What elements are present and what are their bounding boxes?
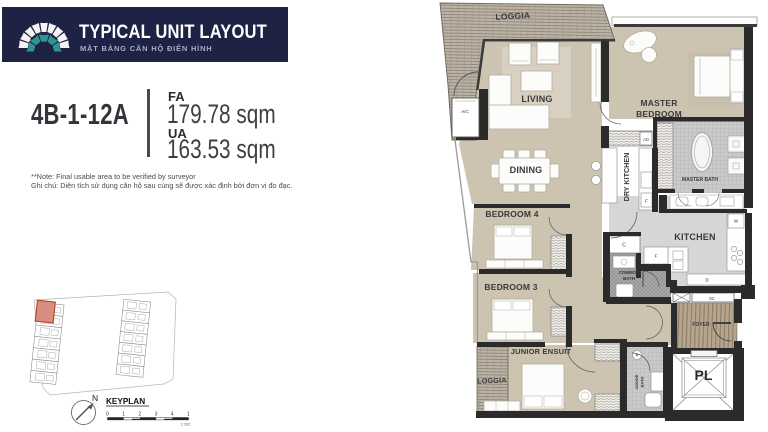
svg-text:BATH: BATH bbox=[640, 376, 645, 387]
svg-text:BEDROOM 4: BEDROOM 4 bbox=[485, 209, 538, 219]
svg-text:BEDROOM 3: BEDROOM 3 bbox=[484, 282, 537, 292]
svg-text:DRY KITCHEN: DRY KITCHEN bbox=[622, 153, 631, 202]
svg-text:0: 0 bbox=[106, 412, 109, 418]
svg-text:1: 1 bbox=[187, 412, 190, 418]
svg-text:N: N bbox=[92, 393, 98, 403]
svg-text:PL: PL bbox=[695, 367, 713, 383]
svg-text:4: 4 bbox=[171, 412, 174, 418]
svg-text:SC: SC bbox=[709, 296, 715, 301]
svg-text:COMMON: COMMON bbox=[619, 270, 640, 275]
svg-text:1: 1 bbox=[122, 412, 125, 418]
svg-text:BATH: BATH bbox=[623, 276, 635, 281]
svg-text:JUNIOR: JUNIOR bbox=[634, 374, 639, 389]
svg-text:JUNIOR ENSUIT: JUNIOR ENSUIT bbox=[511, 347, 572, 356]
svg-text:1:102: 1:102 bbox=[181, 422, 192, 427]
svg-text:KITCHEN: KITCHEN bbox=[674, 232, 715, 242]
svg-text:3: 3 bbox=[155, 412, 158, 418]
svg-text:F: F bbox=[655, 254, 658, 259]
svg-text:LIVING: LIVING bbox=[521, 94, 552, 104]
svg-text:DINING: DINING bbox=[510, 165, 543, 175]
svg-text:A/C: A/C bbox=[461, 109, 469, 114]
svg-text:FOYER: FOYER bbox=[692, 322, 710, 328]
svg-text:2: 2 bbox=[138, 412, 141, 418]
svg-text:KEYPLAN: KEYPLAN bbox=[106, 397, 145, 406]
svg-text:BEDROOM: BEDROOM bbox=[636, 109, 682, 119]
svg-text:LOGGIA: LOGGIA bbox=[477, 375, 507, 385]
svg-text:MASTER: MASTER bbox=[640, 98, 677, 108]
svg-text:F: F bbox=[645, 199, 648, 204]
svg-text:LOGGIA: LOGGIA bbox=[495, 10, 530, 22]
svg-text:MASTER BATH: MASTER BATH bbox=[682, 177, 718, 183]
svg-text:C: C bbox=[622, 243, 626, 249]
svg-text:AD: AD bbox=[643, 137, 649, 142]
